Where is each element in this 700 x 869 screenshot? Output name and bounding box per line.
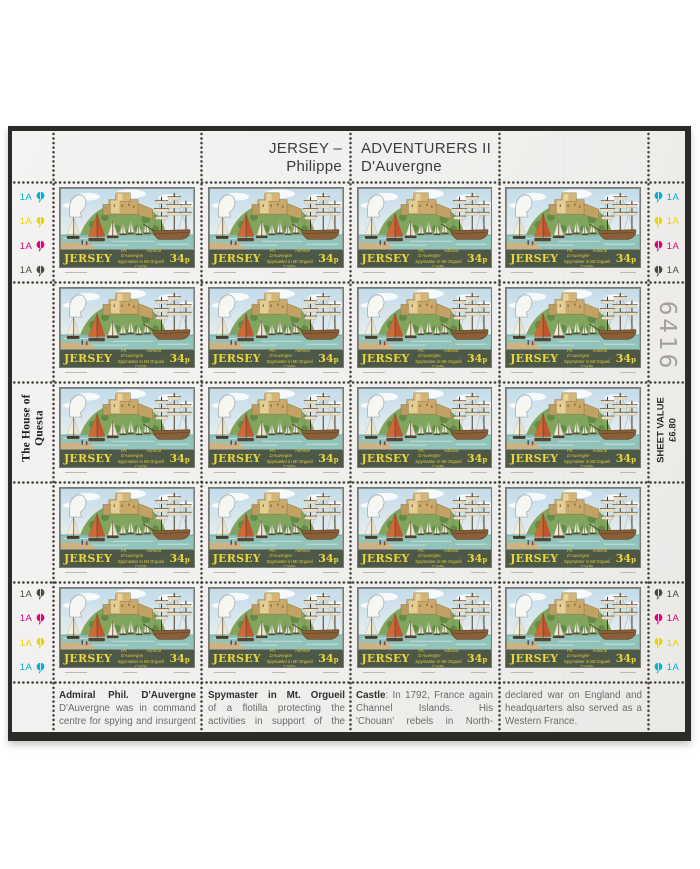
stamp-caption-name: Ph. D'Auvergne — [418, 348, 444, 358]
printer-imprint-marks — [65, 272, 190, 274]
stamp-title-band: JERSEY Ph. D'AuvergneAdmiral Spymaster i… — [209, 550, 343, 567]
color-check-dot-icon — [654, 588, 663, 600]
stamp-design: JERSEY Ph. D'AuvergneAdmiral Spymaster i… — [59, 587, 195, 668]
stamp-artwork-harbour-castle — [209, 188, 343, 250]
printer-imprint-marks — [214, 672, 339, 674]
stamp-caption-line2: Spymaster in Mt Orgueil Castle — [115, 359, 167, 368]
stamp-country-label: JERSEY — [362, 252, 410, 265]
stamp-caption-line2: Spymaster in Mt Orgueil Castle — [561, 259, 613, 268]
stamp-denomination: 34p — [467, 552, 487, 565]
plate-marker: 1A — [12, 191, 53, 203]
stamp: JERSEY Ph. D'AuvergneAdmiral Spymaster i… — [499, 382, 648, 482]
stamp-country-label: JERSEY — [64, 552, 112, 565]
stamp-title-band: JERSEY Ph. D'AuvergneAdmiral Spymaster i… — [358, 550, 492, 567]
color-check-dot-icon — [654, 216, 663, 228]
stamp-caption-title: Admiral — [295, 548, 310, 558]
stamp-country-label: JERSEY — [64, 452, 112, 465]
plate-marker: 1A — [648, 613, 685, 625]
stamp: JERSEY Ph. D'AuvergneAdmiral Spymaster i… — [351, 482, 500, 582]
footer-text-line: D'Auvergne was in command — [59, 703, 196, 716]
stamp-caption-name: Ph. D'Auvergne — [567, 348, 593, 358]
stamp-caption: Ph. D'AuvergneAdmiral Spymaster in Mt Or… — [410, 448, 467, 468]
stamp-denomination: 34p — [616, 452, 636, 465]
stamp-caption: Ph. D'AuvergneAdmiral Spymaster in Mt Or… — [558, 448, 615, 468]
stamp-artwork-harbour-castle — [506, 488, 640, 550]
footer-text-line: headquarters also served as a — [505, 703, 642, 716]
printer-imprint-marks — [363, 572, 488, 574]
stamp-country-label: JERSEY — [510, 552, 558, 565]
stamp-design: JERSEY Ph. D'AuvergneAdmiral Spymaster i… — [208, 487, 344, 568]
stamp-title-band: JERSEY Ph. D'AuvergneAdmiral Spymaster i… — [506, 250, 640, 267]
stamp-caption: Ph. D'AuvergneAdmiral Spymaster in Mt Or… — [112, 648, 169, 668]
stamp-country-label: JERSEY — [362, 652, 410, 665]
plate-marker: 1A — [12, 240, 53, 252]
header-subject-first-name: Philippe — [12, 158, 342, 176]
stamp-design: JERSEY Ph. D'AuvergneAdmiral Spymaster i… — [505, 487, 641, 568]
stamp-caption-name: Ph. D'Auvergne — [270, 548, 296, 558]
stamp-denomination: 34p — [616, 252, 636, 265]
stamp-caption: Ph. D'AuvergneAdmiral Spymaster in Mt Or… — [112, 448, 169, 468]
plate-number-label: 1A — [20, 216, 33, 227]
printer-imprint-marks — [65, 572, 190, 574]
stamp-caption: Ph. D'AuvergneAdmiral Spymaster in Mt Or… — [558, 548, 615, 568]
stamp: JERSEY Ph. D'AuvergneAdmiral Spymaster i… — [499, 582, 648, 682]
color-check-dot-icon — [654, 613, 663, 625]
color-check-dot-icon — [36, 216, 45, 228]
stamp-title-band: JERSEY Ph. D'AuvergneAdmiral Spymaster i… — [209, 650, 343, 667]
stamp-denomination: 34p — [170, 252, 190, 265]
stamp-caption-title: Admiral — [444, 348, 459, 358]
plate-marker: 1A — [12, 662, 53, 674]
printer-name-line2: Questa — [33, 382, 46, 474]
stamp-caption-name: Ph. D'Auvergne — [567, 248, 593, 258]
sheet-value-box: SHEET VALUE £6.80 — [648, 387, 685, 473]
stamp-caption-name: Ph. D'Auvergne — [567, 648, 593, 658]
stamp-caption-name: Ph. D'Auvergne — [418, 648, 444, 658]
stamp-caption-title: Admiral — [444, 548, 459, 558]
stamp: JERSEY Ph. D'AuvergneAdmiral Spymaster i… — [53, 282, 202, 382]
stamp-title-band: JERSEY Ph. D'AuvergneAdmiral Spymaster i… — [358, 350, 492, 367]
stamp-caption-name: Ph. D'Auvergne — [121, 548, 147, 558]
footer-text-line: Castle: In 1792, France again — [356, 690, 493, 703]
stamp-caption-line2: Spymaster in Mt Orgueil Castle — [115, 659, 167, 668]
color-check-dot-icon — [36, 662, 45, 674]
stamp-caption: Ph. D'AuvergneAdmiral Spymaster in Mt Or… — [261, 548, 318, 568]
stamp-caption-name: Ph. D'Auvergne — [121, 448, 147, 458]
stamp: JERSEY Ph. D'AuvergneAdmiral Spymaster i… — [499, 182, 648, 282]
plate-number-label: 1A — [667, 241, 680, 252]
stamp-caption-line2: Spymaster in Mt Orgueil Castle — [115, 559, 167, 568]
stamp-title-band: JERSEY Ph. D'AuvergneAdmiral Spymaster i… — [209, 250, 343, 267]
stamp: JERSEY Ph. D'AuvergneAdmiral Spymaster i… — [53, 582, 202, 682]
sheet-paper: JERSEY – Philippe ADVENTURERS II D'Auver… — [12, 131, 685, 732]
stamp-denomination: 34p — [616, 352, 636, 365]
plate-marker: 1A — [12, 637, 53, 649]
printer-imprint-marks — [65, 472, 190, 474]
plate-marker: 1A — [648, 588, 685, 600]
plate-number-label: 1A — [667, 613, 680, 624]
footer-text-line: Spymaster in Mt. Orgueil — [208, 690, 345, 703]
stamp-title-band: JERSEY Ph. D'AuvergneAdmiral Spymaster i… — [358, 250, 492, 267]
markers-top-right: 1A1A1A1A — [648, 191, 685, 277]
plate-marker: 1A — [12, 216, 53, 228]
color-check-dot-icon — [36, 240, 45, 252]
color-check-dot-icon — [654, 265, 663, 277]
stamp: JERSEY Ph. D'AuvergneAdmiral Spymaster i… — [53, 482, 202, 582]
stamp-caption-line2: Spymaster in Mt Orgueil Castle — [413, 459, 465, 468]
stamp-caption-name: Ph. D'Auvergne — [270, 248, 296, 258]
stamp: JERSEY Ph. D'AuvergneAdmiral Spymaster i… — [202, 582, 351, 682]
plate-number-label: 1A — [20, 241, 33, 252]
color-check-dot-icon — [654, 662, 663, 674]
stamp-denomination: 34p — [467, 352, 487, 365]
stamp-caption: Ph. D'AuvergneAdmiral Spymaster in Mt Or… — [558, 648, 615, 668]
plate-number-label: 1A — [20, 638, 33, 649]
stamp: JERSEY Ph. D'AuvergneAdmiral Spymaster i… — [202, 482, 351, 582]
stamp: JERSEY Ph. D'AuvergneAdmiral Spymaster i… — [351, 282, 500, 382]
header-series-name: JERSEY – — [12, 140, 342, 158]
stamp-caption-line2: Spymaster in Mt Orgueil Castle — [561, 559, 613, 568]
stamp-caption-line2: Spymaster in Mt Orgueil Castle — [561, 659, 613, 668]
stamp-denomination: 34p — [170, 452, 190, 465]
stamp: JERSEY Ph. D'AuvergneAdmiral Spymaster i… — [53, 382, 202, 482]
stamp-caption-name: Ph. D'Auvergne — [567, 448, 593, 458]
stamp-country-label: JERSEY — [362, 452, 410, 465]
printer-imprint-marks — [363, 272, 488, 274]
stamp-caption: Ph. D'AuvergneAdmiral Spymaster in Mt Or… — [410, 648, 467, 668]
stamp-denomination: 34p — [318, 352, 338, 365]
stamp-country-label: JERSEY — [213, 652, 261, 665]
footer-text-column-3: Castle: In 1792, France againChannel Isl… — [356, 690, 493, 728]
stamp-design: JERSEY Ph. D'AuvergneAdmiral Spymaster i… — [208, 287, 344, 368]
stamp-title-band: JERSEY Ph. D'AuvergneAdmiral Spymaster i… — [209, 450, 343, 467]
stamp-caption: Ph. D'AuvergneAdmiral Spymaster in Mt Or… — [410, 548, 467, 568]
stamp-caption-name: Ph. D'Auvergne — [270, 448, 296, 458]
stamp-caption-name: Ph. D'Auvergne — [270, 348, 296, 358]
stamp-country-label: JERSEY — [213, 252, 261, 265]
stamp-artwork-harbour-castle — [209, 288, 343, 350]
plate-number-label: 1A — [20, 265, 33, 276]
color-check-dot-icon — [36, 191, 45, 203]
stamp-caption-title: Admiral — [593, 648, 608, 658]
stamp-caption-title: Admiral — [295, 648, 310, 658]
stamp-title-band: JERSEY Ph. D'AuvergneAdmiral Spymaster i… — [506, 350, 640, 367]
stamp-denomination: 34p — [616, 552, 636, 565]
stamp-country-label: JERSEY — [64, 652, 112, 665]
perforation-column — [646, 131, 651, 732]
perforation-column — [497, 131, 502, 732]
stamp-title-band: JERSEY Ph. D'AuvergneAdmiral Spymaster i… — [60, 350, 194, 367]
plate-number-label: 1A — [20, 192, 33, 203]
stamp-design: JERSEY Ph. D'AuvergneAdmiral Spymaster i… — [208, 587, 344, 668]
stamp-artwork-harbour-castle — [358, 588, 492, 650]
plate-number-label: 1A — [20, 613, 33, 624]
printer-imprint-marks — [511, 572, 636, 574]
stamp-artwork-harbour-castle — [209, 388, 343, 450]
stamp-country-label: JERSEY — [510, 252, 558, 265]
stamp-caption-name: Ph. D'Auvergne — [121, 348, 147, 358]
stamp-title-band: JERSEY Ph. D'AuvergneAdmiral Spymaster i… — [506, 550, 640, 567]
stamp-artwork-harbour-castle — [358, 188, 492, 250]
stamp-caption-name: Ph. D'Auvergne — [270, 648, 296, 658]
footer-text-line: centre for spying and insurgent — [59, 716, 196, 729]
stamp-title-band: JERSEY Ph. D'AuvergneAdmiral Spymaster i… — [60, 250, 194, 267]
markers-top-left: 1A1A1A1A — [12, 191, 53, 277]
stamp-caption: Ph. D'AuvergneAdmiral Spymaster in Mt Or… — [558, 348, 615, 368]
stamp-caption-line2: Spymaster in Mt Orgueil Castle — [561, 459, 613, 468]
stamp-sheet: JERSEY – Philippe ADVENTURERS II D'Auver… — [8, 126, 691, 741]
color-check-dot-icon — [36, 637, 45, 649]
color-check-dot-icon — [654, 191, 663, 203]
stamp-caption-title: Admiral — [146, 548, 161, 558]
plate-marker: 1A — [648, 265, 685, 277]
stamp-title-band: JERSEY Ph. D'AuvergneAdmiral Spymaster i… — [358, 450, 492, 467]
plate-marker: 1A — [648, 637, 685, 649]
stamp-caption: Ph. D'AuvergneAdmiral Spymaster in Mt Or… — [261, 248, 318, 268]
stamp-caption-title: Admiral — [593, 348, 608, 358]
footer-text-line: declared war on England and — [505, 690, 642, 703]
stamp-caption-title: Admiral — [146, 648, 161, 658]
stamp-artwork-harbour-castle — [60, 288, 194, 350]
plate-marker: 1A — [648, 662, 685, 674]
stamp-artwork-harbour-castle — [358, 488, 492, 550]
stamp-country-label: JERSEY — [213, 352, 261, 365]
stamp-caption-line2: Spymaster in Mt Orgueil Castle — [264, 459, 316, 468]
stamp-denomination: 34p — [170, 652, 190, 665]
stamp-caption-title: Admiral — [146, 248, 161, 258]
stamp-title-band: JERSEY Ph. D'AuvergneAdmiral Spymaster i… — [506, 450, 640, 467]
stamp-caption-line2: Spymaster in Mt Orgueil Castle — [413, 359, 465, 368]
stamp-caption: Ph. D'AuvergneAdmiral Spymaster in Mt Or… — [558, 248, 615, 268]
stamp-artwork-harbour-castle — [60, 188, 194, 250]
plate-marker: 1A — [12, 588, 53, 600]
stamp-denomination: 34p — [467, 652, 487, 665]
stamp-title-band: JERSEY Ph. D'AuvergneAdmiral Spymaster i… — [209, 350, 343, 367]
stamp-caption: Ph. D'AuvergneAdmiral Spymaster in Mt Or… — [112, 348, 169, 368]
stamp-design: JERSEY Ph. D'AuvergneAdmiral Spymaster i… — [59, 487, 195, 568]
stamp-country-label: JERSEY — [510, 452, 558, 465]
stamp-artwork-harbour-castle — [506, 588, 640, 650]
stamp-caption-name: Ph. D'Auvergne — [418, 248, 444, 258]
stamp-denomination: 34p — [318, 252, 338, 265]
stamp-caption-title: Admiral — [593, 448, 608, 458]
stamp: JERSEY Ph. D'AuvergneAdmiral Spymaster i… — [202, 182, 351, 282]
stamp-denomination: 34p — [318, 652, 338, 665]
stamp-caption-title: Admiral — [593, 248, 608, 258]
plate-marker: 1A — [648, 191, 685, 203]
stamp-caption-name: Ph. D'Auvergne — [567, 548, 593, 558]
stamp-title-band: JERSEY Ph. D'AuvergneAdmiral Spymaster i… — [60, 650, 194, 667]
printer-name-box: The House of Questa — [12, 383, 53, 473]
stamp-denomination: 34p — [170, 352, 190, 365]
header-subject-surname: D'Auvergne — [361, 158, 491, 176]
stamp-artwork-harbour-castle — [60, 388, 194, 450]
stamp-design: JERSEY Ph. D'AuvergneAdmiral Spymaster i… — [505, 187, 641, 268]
stamp-design: JERSEY Ph. D'AuvergneAdmiral Spymaster i… — [357, 387, 493, 468]
stamp-caption-name: Ph. D'Auvergne — [418, 548, 444, 558]
stamp-country-label: JERSEY — [362, 552, 410, 565]
footer-text-line: 'Chouan' rebels in North- — [356, 716, 493, 729]
plate-marker: 1A — [12, 265, 53, 277]
footer-text-line: Channel Islands. His — [356, 703, 493, 716]
printer-imprint-marks — [214, 472, 339, 474]
stamp-country-label: JERSEY — [362, 352, 410, 365]
printer-imprint-marks — [363, 372, 488, 374]
stamp-country-label: JERSEY — [213, 552, 261, 565]
stamp-caption: Ph. D'AuvergneAdmiral Spymaster in Mt Or… — [410, 248, 467, 268]
plate-number-label: 1A — [20, 662, 33, 673]
stamp-caption-line2: Spymaster in Mt Orgueil Castle — [264, 359, 316, 368]
printer-imprint-marks — [511, 472, 636, 474]
sheet-number-box: 6416 — [648, 294, 685, 378]
footer-text-line: Western France. — [505, 716, 642, 729]
plate-marker: 1A — [12, 613, 53, 625]
stamp-title-band: JERSEY Ph. D'AuvergneAdmiral Spymaster i… — [358, 650, 492, 667]
stamp-artwork-harbour-castle — [209, 588, 343, 650]
stamp-artwork-harbour-castle — [358, 288, 492, 350]
sheet-header-left: JERSEY – Philippe — [12, 140, 342, 175]
stamp-artwork-harbour-castle — [209, 488, 343, 550]
stamp-country-label: JERSEY — [213, 452, 261, 465]
stamp-caption-line2: Spymaster in Mt Orgueil Castle — [561, 359, 613, 368]
stamp-sheet-photo: JERSEY – Philippe ADVENTURERS II D'Auver… — [0, 0, 700, 869]
stamp-caption-title: Admiral — [444, 248, 459, 258]
printer-imprint-marks — [511, 272, 636, 274]
printer-imprint-marks — [65, 372, 190, 374]
stamp-caption-line2: Spymaster in Mt Orgueil Castle — [115, 459, 167, 468]
perforation-column — [199, 131, 204, 732]
stamp-design: JERSEY Ph. D'AuvergneAdmiral Spymaster i… — [357, 287, 493, 368]
plate-number-label: 1A — [20, 589, 33, 600]
printer-imprint-marks — [363, 472, 488, 474]
plate-marker: 1A — [648, 240, 685, 252]
stamp-artwork-harbour-castle — [60, 488, 194, 550]
stamp-caption-line2: Spymaster in Mt Orgueil Castle — [115, 259, 167, 268]
stamp-title-band: JERSEY Ph. D'AuvergneAdmiral Spymaster i… — [60, 450, 194, 467]
stamp-design: JERSEY Ph. D'AuvergneAdmiral Spymaster i… — [357, 187, 493, 268]
sheet-header-right: ADVENTURERS II D'Auvergne — [361, 140, 491, 175]
footer-text-column-4: declared war on England andheadquarters … — [505, 690, 642, 728]
stamp-caption-line2: Spymaster in Mt Orgueil Castle — [413, 559, 465, 568]
printer-imprint-marks — [214, 372, 339, 374]
plate-number-label: 1A — [667, 265, 680, 276]
printer-imprint-marks — [214, 272, 339, 274]
stamp-caption-line2: Spymaster in Mt Orgueil Castle — [264, 259, 316, 268]
stamp: JERSEY Ph. D'AuvergneAdmiral Spymaster i… — [499, 482, 648, 582]
printer-imprint-marks — [511, 672, 636, 674]
stamp-caption-name: Ph. D'Auvergne — [418, 448, 444, 458]
sheet-serial-number: 6416 — [654, 301, 680, 372]
stamp-title-band: JERSEY Ph. D'AuvergneAdmiral Spymaster i… — [506, 650, 640, 667]
stamp-design: JERSEY Ph. D'AuvergneAdmiral Spymaster i… — [505, 387, 641, 468]
stamp-caption-title: Admiral — [593, 548, 608, 558]
stamp-artwork-harbour-castle — [506, 288, 640, 350]
stamp-caption: Ph. D'AuvergneAdmiral Spymaster in Mt Or… — [112, 248, 169, 268]
color-check-dot-icon — [36, 588, 45, 600]
stamp: JERSEY Ph. D'AuvergneAdmiral Spymaster i… — [351, 582, 500, 682]
stamp-caption-line2: Spymaster in Mt Orgueil Castle — [264, 659, 316, 668]
plate-marker: 1A — [648, 216, 685, 228]
stamp-country-label: JERSEY — [510, 352, 558, 365]
color-check-dot-icon — [36, 613, 45, 625]
perforation-column — [348, 131, 353, 732]
stamp-caption-name: Ph. D'Auvergne — [121, 248, 147, 258]
color-check-dot-icon — [654, 240, 663, 252]
stamp-design: JERSEY Ph. D'AuvergneAdmiral Spymaster i… — [59, 287, 195, 368]
markers-bottom-left: 1A1A1A1A — [12, 588, 53, 674]
color-check-dot-icon — [36, 265, 45, 277]
stamp-caption-title: Admiral — [146, 448, 161, 458]
plate-number-label: 1A — [667, 216, 680, 227]
printer-imprint-marks — [65, 672, 190, 674]
plate-number-label: 1A — [667, 662, 680, 673]
stamp-caption-name: Ph. D'Auvergne — [121, 648, 147, 658]
stamp-caption-line2: Spymaster in Mt Orgueil Castle — [413, 659, 465, 668]
stamp-caption: Ph. D'AuvergneAdmiral Spymaster in Mt Or… — [112, 548, 169, 568]
stamp-denomination: 34p — [467, 452, 487, 465]
stamp-denomination: 34p — [170, 552, 190, 565]
footer-text-column-2: Spymaster in Mt. Orgueilof a flotilla pr… — [208, 690, 345, 728]
stamp-caption-title: Admiral — [295, 348, 310, 358]
stamp-caption-title: Admiral — [295, 448, 310, 458]
footer-text-line: of a flotilla protecting the — [208, 703, 345, 716]
sheet-value-amount: £6.80 — [667, 389, 679, 471]
stamp: JERSEY Ph. D'AuvergneAdmiral Spymaster i… — [499, 282, 648, 382]
perforation-column — [51, 131, 56, 732]
footer-text-line: Admiral Phil. D'Auvergne — [59, 690, 196, 703]
printer-name-line1: The House of — [20, 382, 33, 474]
stamp: JERSEY Ph. D'AuvergneAdmiral Spymaster i… — [53, 182, 202, 282]
stamp-artwork-harbour-castle — [506, 188, 640, 250]
stamp-design: JERSEY Ph. D'AuvergneAdmiral Spymaster i… — [208, 187, 344, 268]
sheet-value-label: SHEET VALUE — [655, 389, 667, 471]
stamp-caption-line2: Spymaster in Mt Orgueil Castle — [264, 559, 316, 568]
stamp-artwork-harbour-castle — [358, 388, 492, 450]
stamp-title-band: JERSEY Ph. D'AuvergneAdmiral Spymaster i… — [60, 550, 194, 567]
stamp-caption: Ph. D'AuvergneAdmiral Spymaster in Mt Or… — [410, 348, 467, 368]
printer-imprint-marks — [511, 372, 636, 374]
header-series-title: ADVENTURERS II — [361, 140, 491, 158]
stamp-caption: Ph. D'AuvergneAdmiral Spymaster in Mt Or… — [261, 648, 318, 668]
plate-number-label: 1A — [667, 192, 680, 203]
printer-imprint-marks — [214, 572, 339, 574]
printer-imprint-marks — [363, 672, 488, 674]
stamp-caption-line2: Spymaster in Mt Orgueil Castle — [413, 259, 465, 268]
stamp-country-label: JERSEY — [64, 252, 112, 265]
stamp-design: JERSEY Ph. D'AuvergneAdmiral Spymaster i… — [357, 587, 493, 668]
color-check-dot-icon — [654, 637, 663, 649]
stamp-denomination: 34p — [318, 552, 338, 565]
stamp: JERSEY Ph. D'AuvergneAdmiral Spymaster i… — [351, 182, 500, 282]
markers-bottom-right: 1A1A1A1A — [648, 588, 685, 674]
stamp-caption-title: Admiral — [444, 648, 459, 658]
stamp-country-label: JERSEY — [64, 352, 112, 365]
plate-number-label: 1A — [667, 589, 680, 600]
stamp-caption: Ph. D'AuvergneAdmiral Spymaster in Mt Or… — [261, 448, 318, 468]
stamp-caption-title: Admiral — [295, 248, 310, 258]
stamp-caption-title: Admiral — [146, 348, 161, 358]
stamp-artwork-harbour-castle — [60, 588, 194, 650]
stamp-caption: Ph. D'AuvergneAdmiral Spymaster in Mt Or… — [261, 348, 318, 368]
stamp-denomination: 34p — [318, 452, 338, 465]
footer-text-column-1: Admiral Phil. D'AuvergneD'Auvergne was i… — [59, 690, 196, 728]
stamp-design: JERSEY Ph. D'AuvergneAdmiral Spymaster i… — [505, 587, 641, 668]
stamp-design: JERSEY Ph. D'AuvergneAdmiral Spymaster i… — [357, 487, 493, 568]
plate-number-label: 1A — [667, 638, 680, 649]
stamp-artwork-harbour-castle — [506, 388, 640, 450]
footer-text-line: activities in support of the — [208, 716, 345, 729]
stamp-country-label: JERSEY — [510, 652, 558, 665]
